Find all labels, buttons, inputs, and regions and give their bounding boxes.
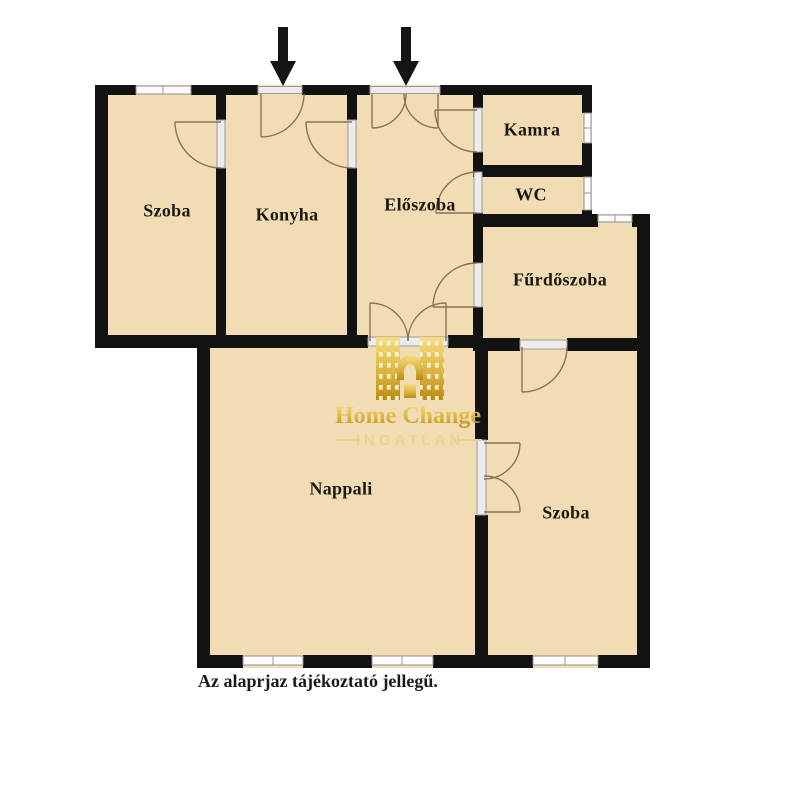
room-label-kamra: Kamra — [504, 120, 560, 141]
disclaimer-caption: Az alaprjaz tájékoztató jellegű. — [198, 671, 438, 692]
room-label-eloszoba: Előszoba — [384, 195, 455, 216]
floorplan-canvas: Home Change INGATLAN Szoba Konyha Előszo… — [0, 0, 805, 789]
watermark-tagline-text: INGATLAN — [356, 432, 464, 449]
room-label-szoba-bottom-right: Szoba — [542, 503, 590, 524]
entrance-arrows — [270, 27, 419, 86]
room-label-wc: WC — [515, 185, 547, 206]
down-arrow-icon — [270, 27, 296, 86]
room-label-szoba-top-left: Szoba — [143, 201, 191, 222]
logo-pillar — [404, 384, 416, 398]
down-arrow-icon — [393, 27, 419, 86]
watermark-brand-text: Home Change — [335, 403, 481, 429]
room-label-furdoszoba: Fűrdőszoba — [513, 270, 607, 291]
room-label-nappali: Nappali — [309, 479, 372, 500]
room-label-konyha: Konyha — [256, 205, 319, 226]
